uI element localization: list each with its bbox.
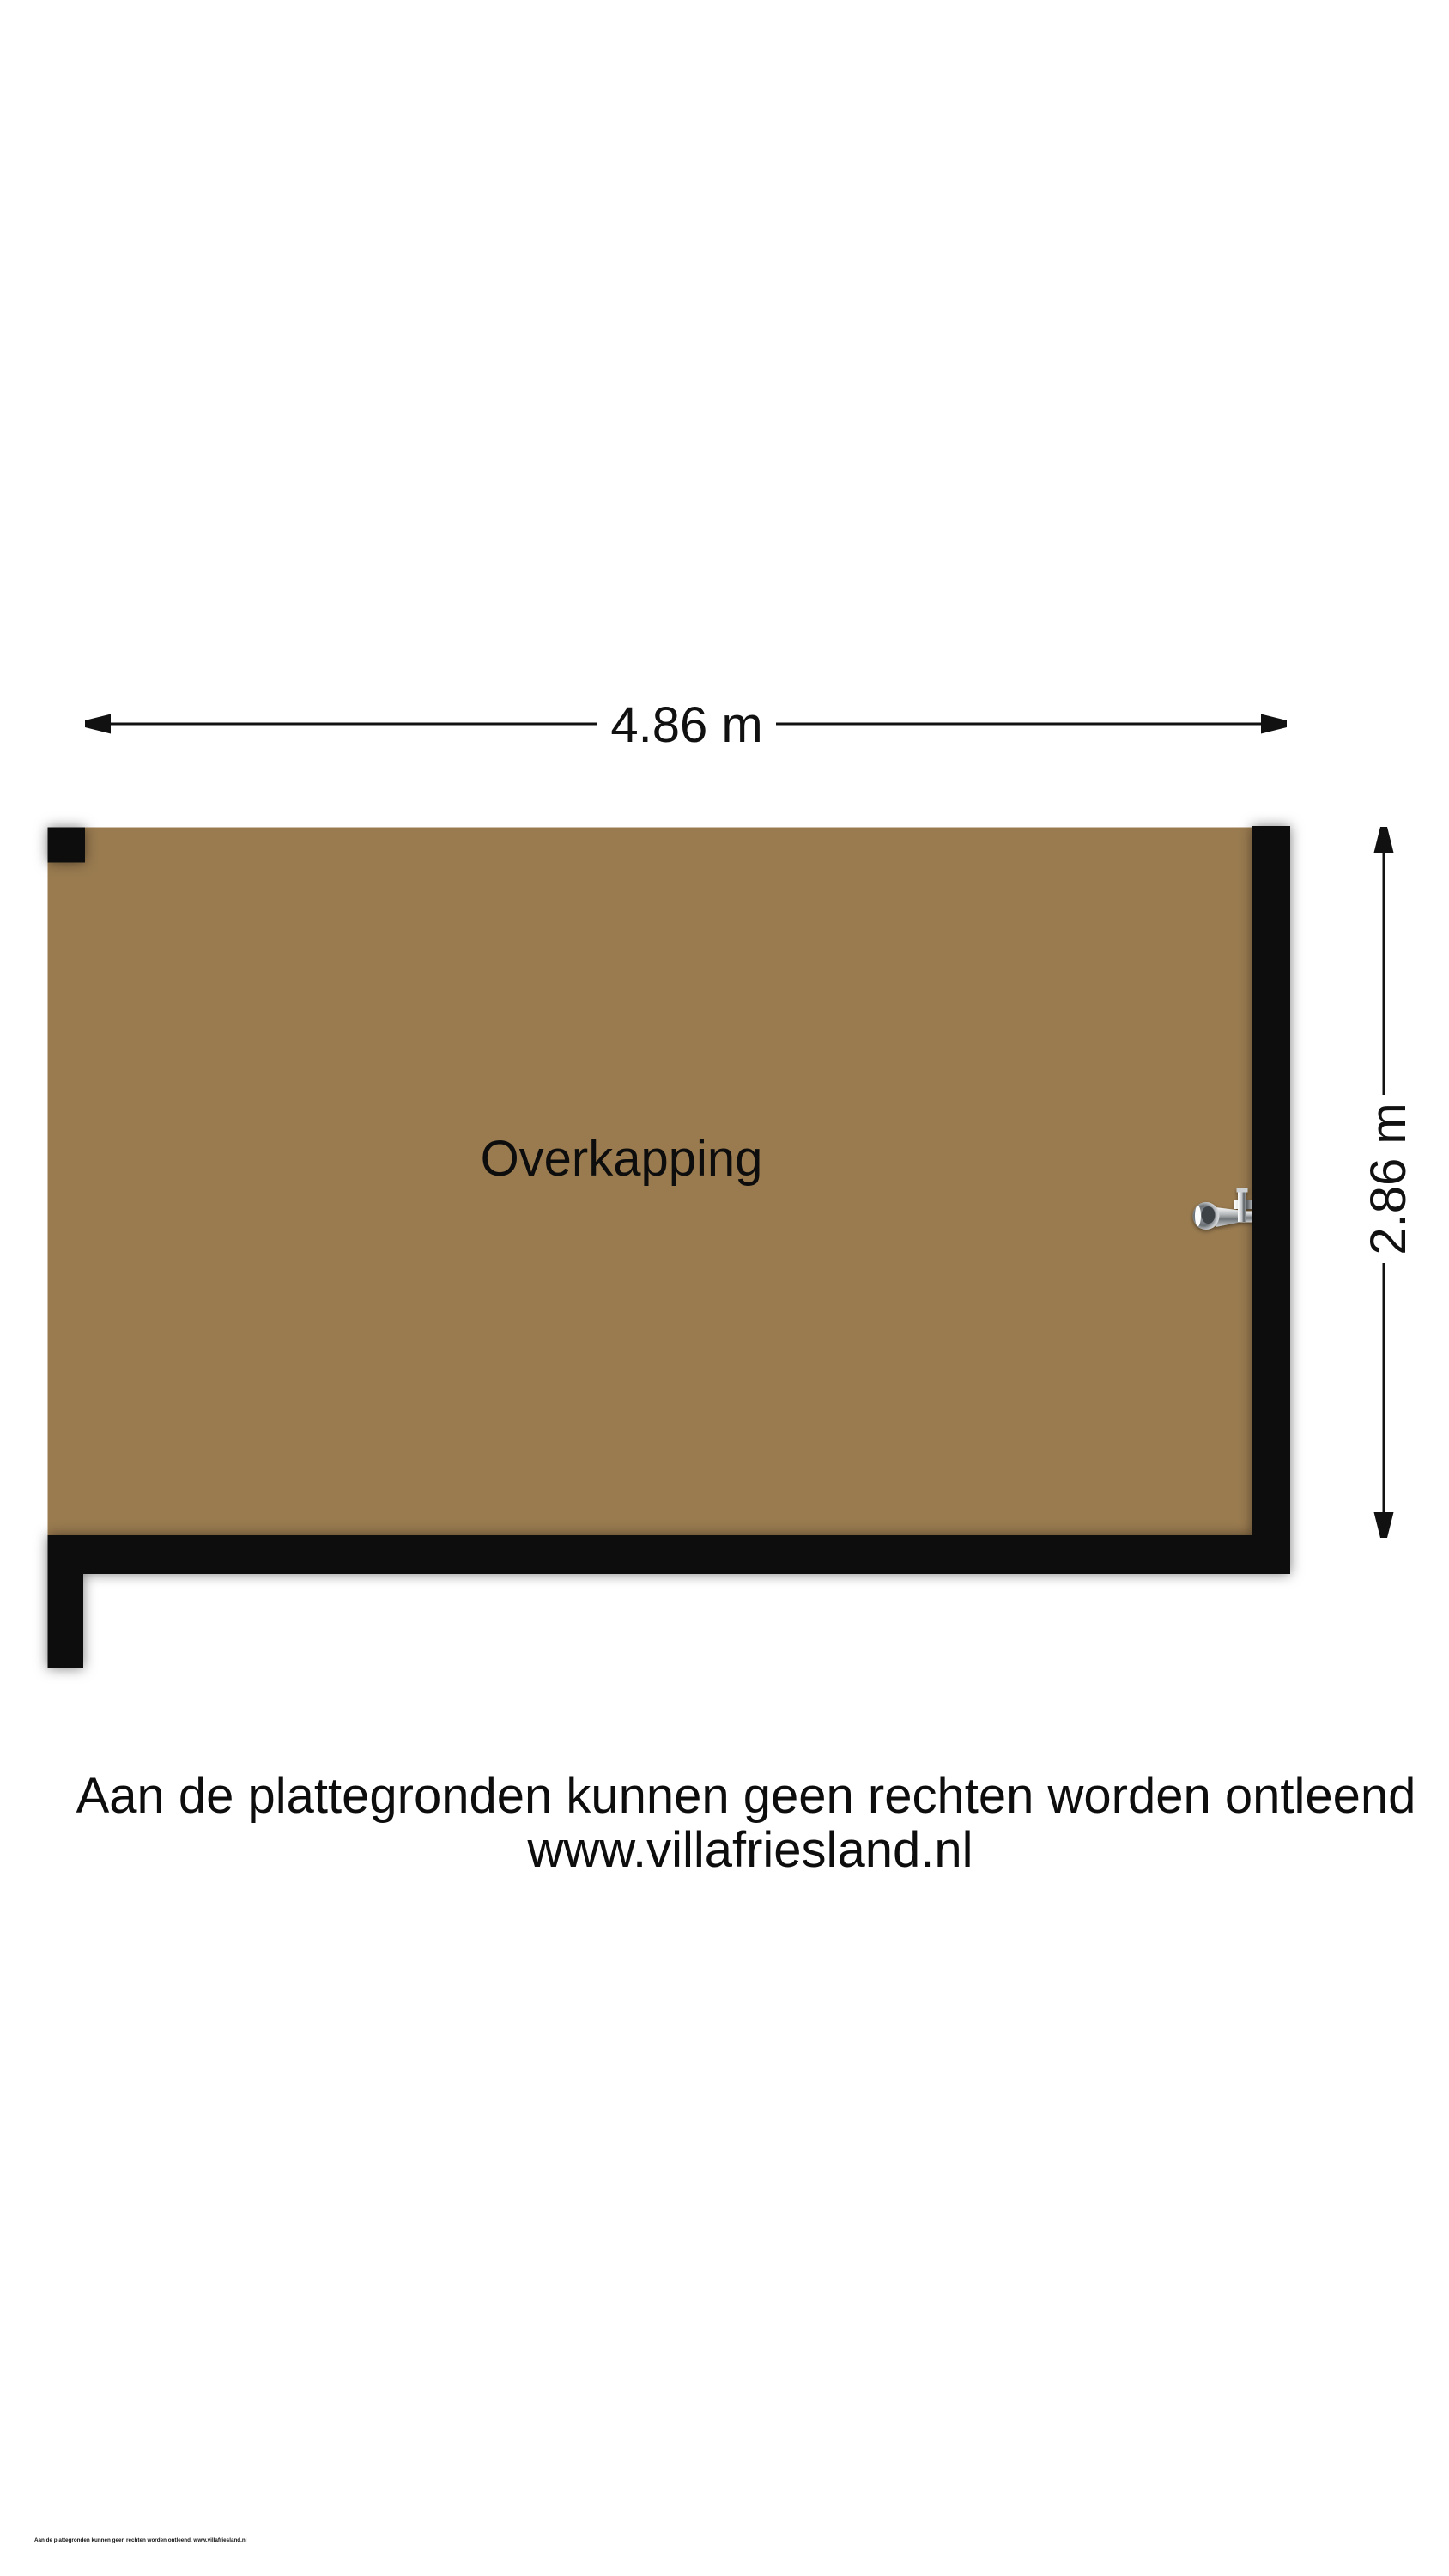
svg-text:Aan de plattegronden kunnen ge: Aan de plattegronden kunnen geen rechten… (76, 1768, 1416, 1824)
svg-text:2.86 m: 2.86 m (1361, 1103, 1416, 1255)
svg-text:4.86 m: 4.86 m (610, 697, 762, 753)
svg-text:Aan de plattegronden kunnen ge: Aan de plattegronden kunnen geen rechten… (34, 2537, 247, 2543)
svg-text:Overkapping: Overkapping (481, 1131, 763, 1187)
svg-text:www.villafriesland.nl: www.villafriesland.nl (527, 1822, 973, 1878)
